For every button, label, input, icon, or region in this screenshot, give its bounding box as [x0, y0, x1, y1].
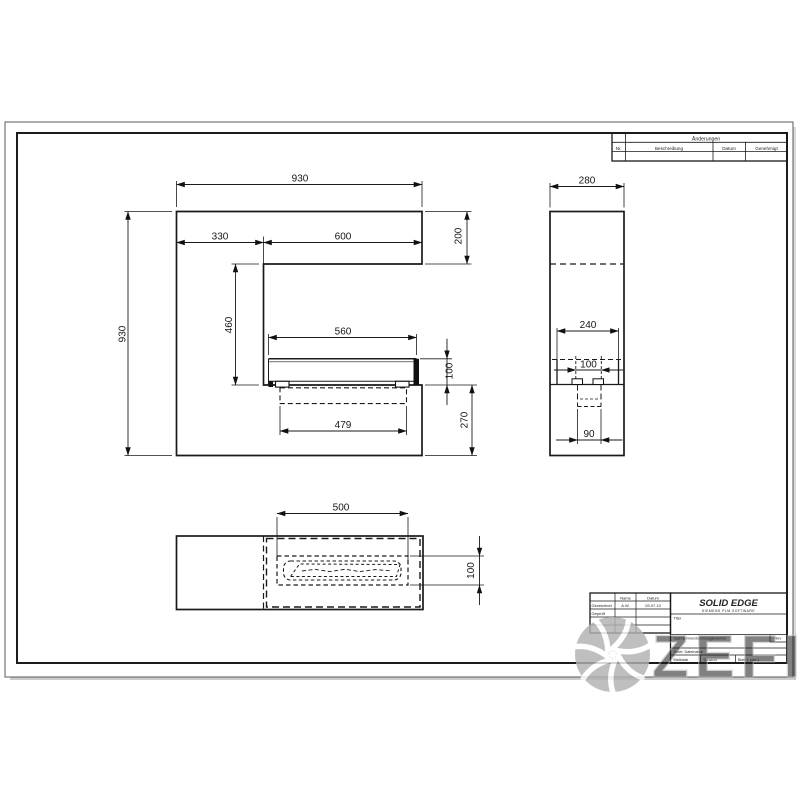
revision-col-approved: Genehmigt: [755, 146, 778, 151]
dim-front-left-column: 330: [212, 232, 229, 243]
zefire-watermark-text: ZEFIRE: [652, 623, 800, 690]
titleblock-col-name: Name: [620, 595, 631, 600]
dim-front-top-bar-height: 200: [454, 227, 465, 244]
side-foot-left: [572, 379, 583, 385]
outer-border: [5, 122, 793, 677]
titleblock-title-label: Titel: [674, 616, 682, 621]
titleblock-col-date: Datum: [647, 595, 659, 600]
titleblock-drawn-name: A.W.: [621, 603, 629, 608]
drawing-sheet-screenshot: Änderungen Nr. Beschreibung Datum Genehm…: [0, 0, 800, 800]
dim-side-depth: 280: [579, 176, 596, 187]
dim-side-slot-width: 100: [580, 360, 597, 371]
dim-front-bottom-height: 270: [460, 411, 471, 428]
revision-col-description: Beschreibung: [655, 146, 684, 151]
dim-side-box-depth: 240: [580, 320, 597, 331]
sheet-border: [5, 122, 796, 680]
front-burner-foot-right: [396, 381, 410, 387]
revision-col-date: Datum: [722, 146, 736, 151]
side-foot-right: [593, 379, 604, 385]
revision-col-nr: Nr.: [616, 146, 622, 151]
dim-side-tank-depth: 90: [583, 429, 595, 440]
titleblock-checked-label: Geprüft: [592, 611, 606, 616]
dim-front-overall-height: 930: [118, 325, 129, 342]
dim-plan-slot-depth: 100: [466, 562, 477, 579]
dim-front-overall-width: 930: [292, 174, 309, 185]
titleblock-drawn-label: Gezeichnet: [592, 603, 613, 608]
solid-edge-logo-text: SOLID EDGE: [699, 598, 758, 609]
sheet-shadow-right: [794, 127, 797, 679]
front-burner-foot-left: [276, 381, 290, 387]
cad-drawing-svg: Änderungen Nr. Beschreibung Datum Genehm…: [0, 0, 800, 800]
zefire-logo-watermark: [575, 617, 650, 692]
dim-front-opening-height: 460: [224, 316, 235, 333]
dim-front-tank-width: 479: [335, 420, 352, 431]
titleblock-drawn-date: 03.07.13: [645, 603, 661, 608]
siemens-plm-text: SIEMENS PLM SOFTWARE: [702, 609, 755, 613]
revision-table-header: Änderungen: [692, 135, 720, 142]
dim-front-burner-height: 100: [445, 362, 456, 379]
front-burner-right-edge: [414, 359, 420, 385]
dim-front-burner-width: 560: [335, 327, 352, 338]
dim-plan-insert-width: 500: [333, 503, 350, 514]
dim-front-opening-width: 600: [335, 232, 352, 243]
